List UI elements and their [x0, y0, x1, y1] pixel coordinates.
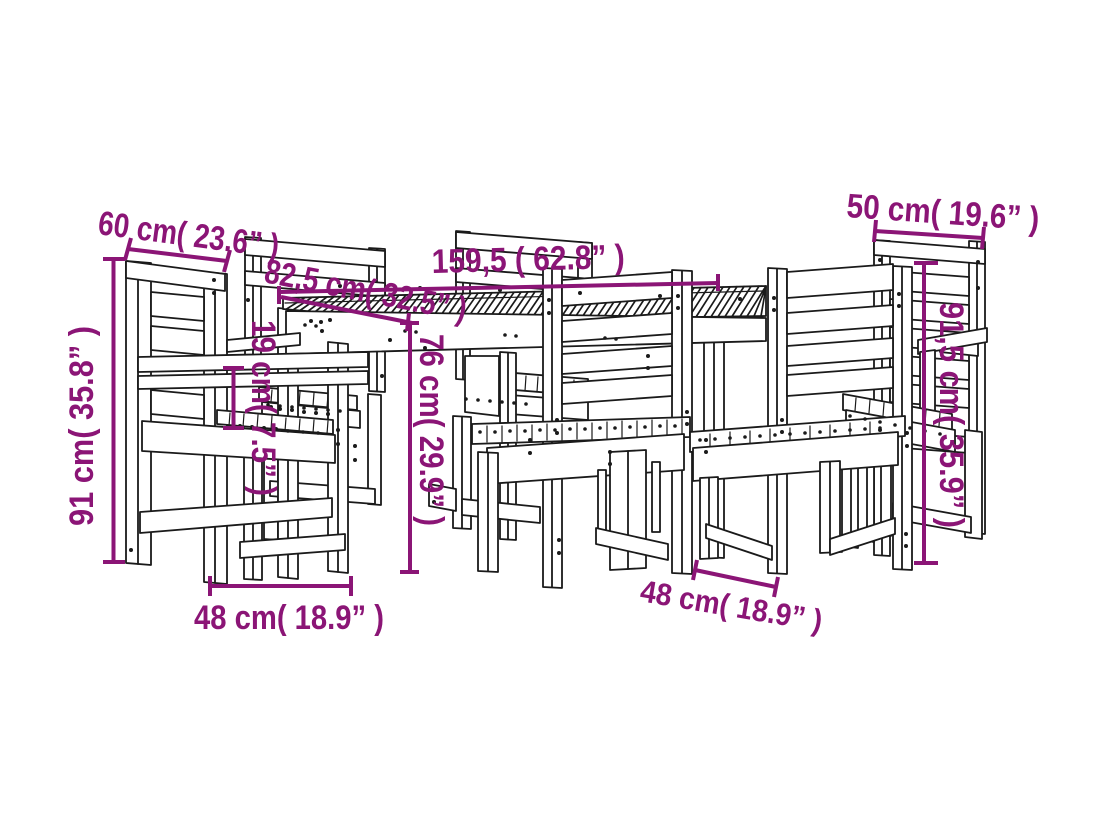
svg-text:76 cm( 29.9” ): 76 cm( 29.9” ): [412, 334, 450, 526]
svg-text:19 cm( 7.5” ): 19 cm( 7.5” ): [244, 320, 282, 496]
svg-text:159,5 ( 62.8” ): 159,5 ( 62.8” ): [431, 238, 625, 281]
svg-text:91 cm( 35.8” ): 91 cm( 35.8” ): [63, 326, 101, 526]
svg-text:91,5 cm( 35.9” ): 91,5 cm( 35.9” ): [932, 302, 970, 528]
svg-text:48 cm( 18.9” ): 48 cm( 18.9” ): [194, 599, 384, 637]
